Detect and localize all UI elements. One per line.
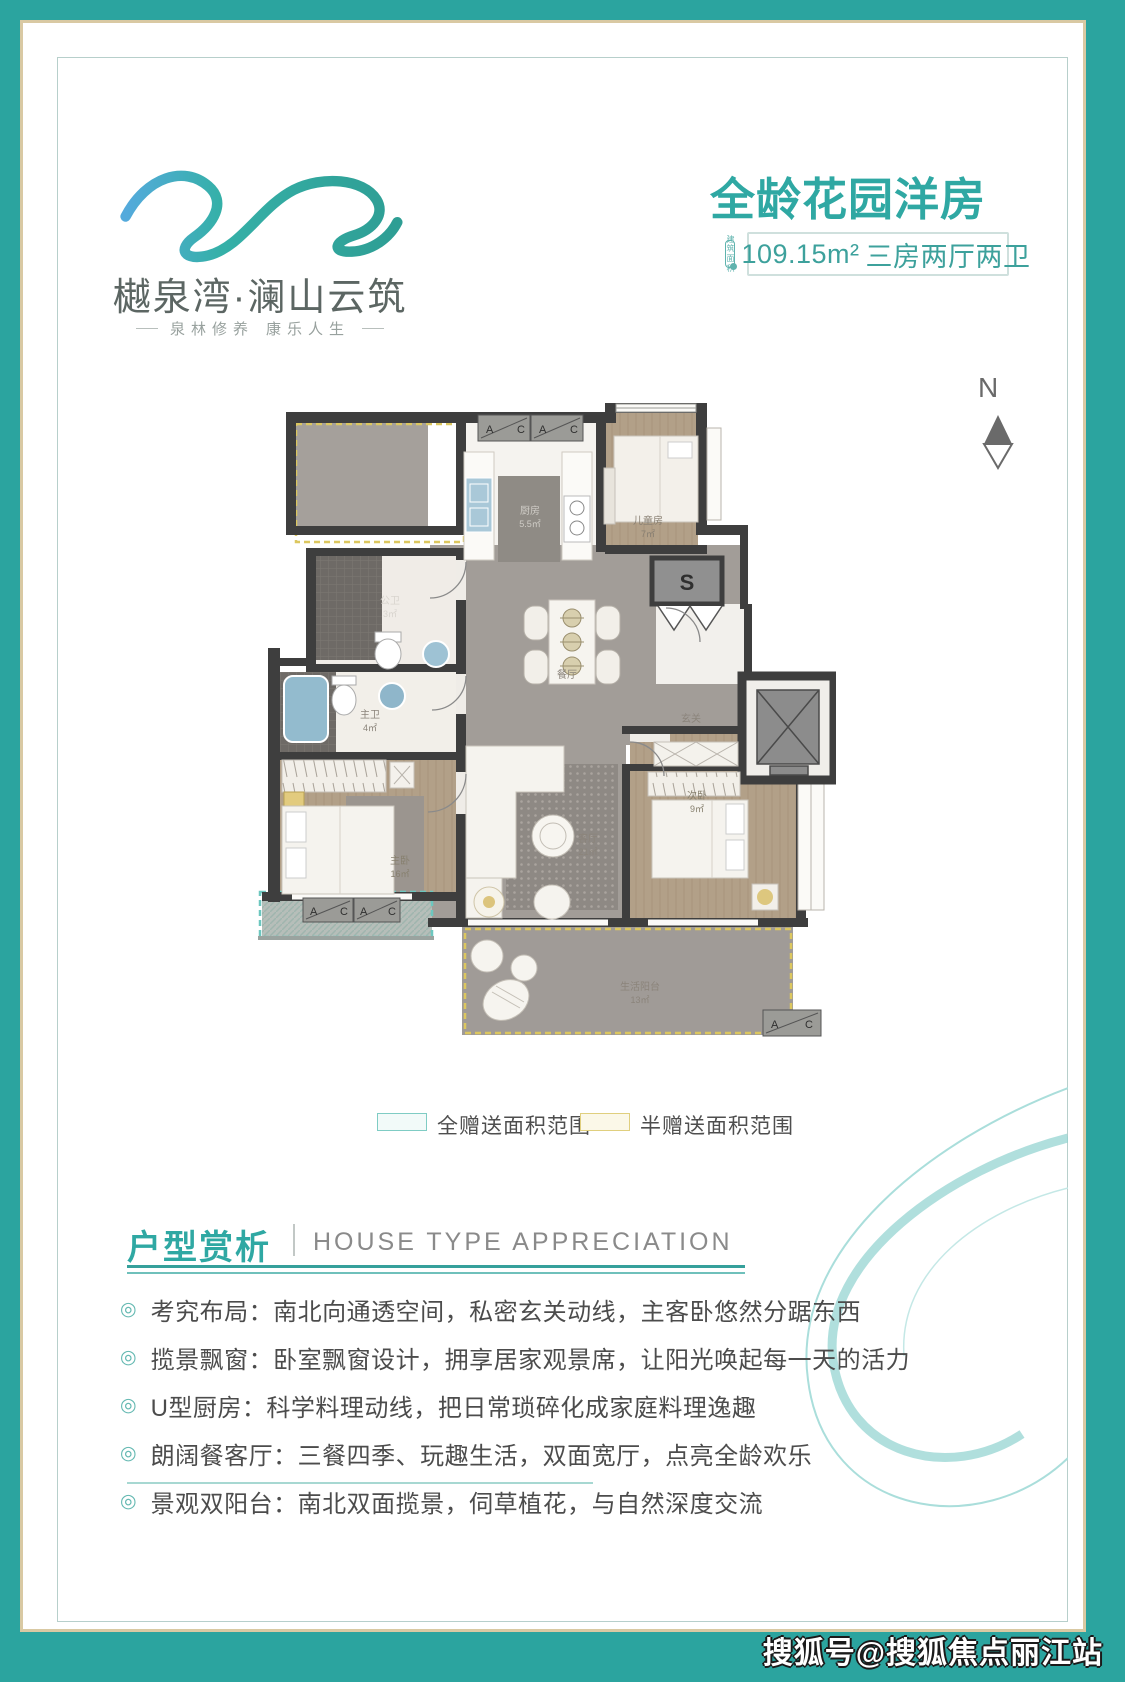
svg-text:厨房: 厨房 [520, 504, 540, 517]
compass-north-label: N [978, 372, 998, 404]
svg-text:21㎡: 21㎡ [578, 847, 597, 857]
svg-text:生活阳台: 生活阳台 [620, 980, 660, 993]
svg-text:C: C [570, 424, 578, 436]
watermark: 搜狐号@搜狐焦点丽江站 [763, 1628, 1103, 1672]
floor-plan: S A C A C A C A C [250, 380, 836, 1042]
section-rule-bottom [127, 1272, 745, 1274]
tagline-dash-left [136, 328, 158, 329]
legend-label-full-gift: 全赠送面积范围 [437, 1110, 591, 1140]
feature-item: ◎ 揽景飘窗：卧室飘窗设计，拥享居家观景席，让阳光唤起每一天的活力 [120, 1340, 840, 1375]
svg-text:主卫: 主卫 [360, 709, 380, 721]
legend-swatch-half-gift [580, 1113, 630, 1131]
legend-swatch-full-gift [377, 1113, 427, 1131]
layout-value: 三房两厅两卫 [866, 235, 1031, 274]
tagline-dash-right [362, 328, 384, 329]
section-rule-top [127, 1265, 745, 1268]
area-spec-badge: 建筑面积 109.15m² 三房两厅两卫 [747, 232, 1009, 276]
svg-text:4㎡: 4㎡ [363, 723, 377, 733]
svg-text:公卫: 公卫 [380, 596, 400, 607]
svg-text:7㎡: 7㎡ [641, 529, 655, 539]
svg-text:A: A [771, 1019, 779, 1031]
svg-text:C: C [388, 906, 396, 918]
area-value: 109.15m² [741, 239, 859, 270]
poster-page: 樾泉湾·澜山云筑 泉林修养 康乐人生 全龄花园洋房 建筑面积 109.15m² … [0, 0, 1125, 1682]
bullet-icon: ◎ [120, 1492, 137, 1511]
svg-text:A: A [539, 424, 547, 436]
bullet-icon: ◎ [120, 1444, 137, 1463]
svg-text:A: A [486, 424, 494, 436]
building-area-icon: 建筑面积 [725, 240, 735, 268]
bullet-icon: ◎ [120, 1396, 137, 1415]
svg-text:A: A [360, 906, 368, 918]
svg-text:餐厅: 餐厅 [557, 668, 577, 681]
svg-text:16㎡: 16㎡ [390, 869, 409, 879]
bullet-icon: ◎ [120, 1300, 137, 1319]
feature-item: ◎ 考究布局：南北向通透空间，私密玄关动线，主客卧悠然分踞东西 [120, 1292, 840, 1327]
svg-text:C: C [517, 424, 525, 436]
svg-text:客厅: 客厅 [578, 832, 598, 845]
svg-text:次卧: 次卧 [687, 789, 707, 802]
elevator-shaft [742, 676, 834, 780]
svg-text:13㎡: 13㎡ [630, 995, 649, 1005]
kids-furniture [604, 436, 698, 524]
svg-text:5.5㎡: 5.5㎡ [519, 519, 541, 529]
brand-tagline: 泉林修养 康乐人生 [110, 318, 410, 339]
section-title-cn: 户型赏析 [127, 1220, 271, 1269]
feature-item: ◎ U型厨房：科学料理动线，把日常琐碎化成家庭料理逸趣 [120, 1388, 840, 1423]
stairwell-label: S [680, 570, 695, 595]
compass-arrow-icon [960, 408, 1020, 478]
feature-list: ◎ 考究布局：南北向通透空间，私密玄关动线，主客卧悠然分踞东西 ◎ 揽景飘窗：卧… [120, 1292, 840, 1519]
svg-text:9㎡: 9㎡ [690, 804, 704, 814]
svg-text:儿童房: 儿童房 [633, 514, 663, 527]
brand-wave-logo [118, 148, 403, 266]
footer-rule [127, 1482, 593, 1484]
section-title-divider [293, 1224, 295, 1256]
feature-item: ◎ 朗阔餐客厅：三餐四季、玩趣生活，双面宽厅，点亮全龄欢乐 [120, 1436, 840, 1471]
svg-text:C: C [805, 1019, 813, 1031]
feature-item: ◎ 景观双阳台：南北双面揽景，伺草植花，与自然深度交流 [120, 1484, 840, 1519]
brand-name: 樾泉湾·澜山云筑 [110, 266, 410, 321]
bullet-icon: ◎ [120, 1348, 137, 1367]
svg-text:玄关: 玄关 [681, 712, 701, 725]
svg-text:主卧: 主卧 [390, 854, 410, 867]
svg-text:C: C [340, 906, 348, 918]
legend-label-half-gift: 半赠送面积范围 [640, 1110, 794, 1140]
tagline-right: 康乐人生 [266, 318, 350, 339]
tagline-left: 泉林修养 [170, 318, 254, 339]
section-title-en: HOUSE TYPE APPRECIATION [313, 1228, 733, 1257]
svg-text:3㎡: 3㎡ [383, 609, 397, 619]
page-title: 全龄花园洋房 [710, 163, 1010, 228]
svg-text:A: A [310, 906, 318, 918]
